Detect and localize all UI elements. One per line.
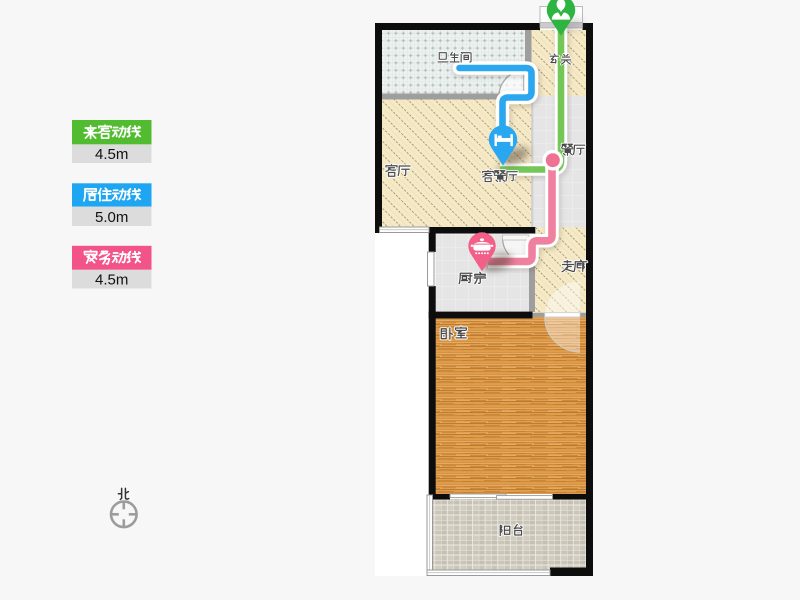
- svg-text:4.5m: 4.5m: [95, 272, 128, 289]
- svg-text:4.5m: 4.5m: [95, 146, 128, 163]
- svg-text:5.0m: 5.0m: [95, 209, 128, 226]
